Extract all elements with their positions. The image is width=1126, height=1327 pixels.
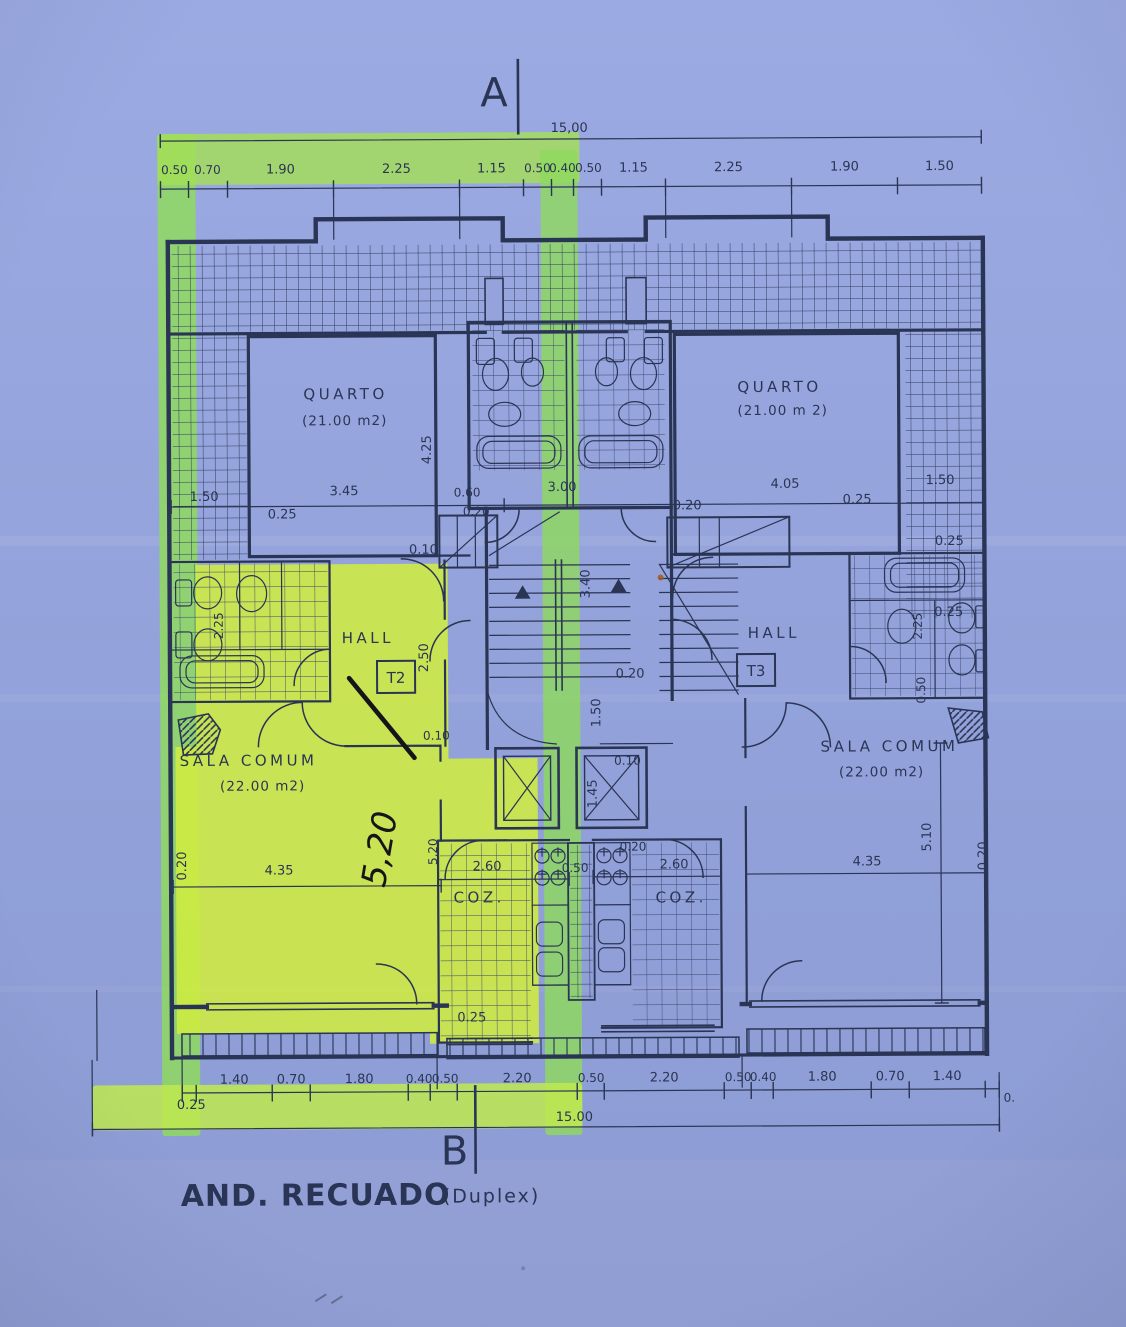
floor-plan-svg: A B 15,00 15.00 0.50 0.70 1.90 2.25 1.15… — [0, 0, 1126, 1327]
floor-plan-photo: A B 15,00 15.00 0.50 0.70 1.90 2.25 1.15… — [0, 0, 1126, 1327]
vignette — [0, 0, 1126, 1327]
